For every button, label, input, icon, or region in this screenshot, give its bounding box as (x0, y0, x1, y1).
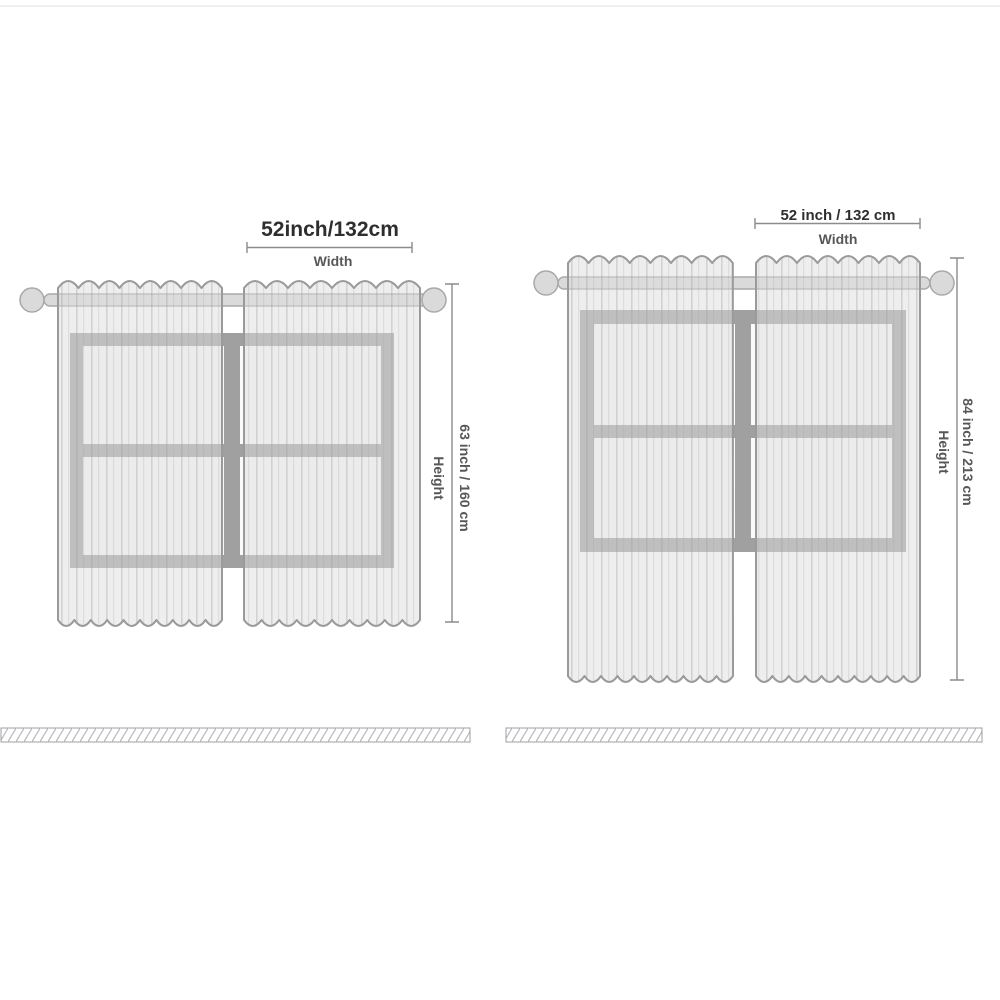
height-label: Height (936, 430, 952, 474)
height-dimension-line (445, 284, 459, 622)
width-dimension-line (247, 242, 412, 253)
height-value: 63 inch / 160 cm (457, 424, 473, 531)
diagram-84-inch: 52 inch / 132 cm Width 84 inch / 213 cm … (534, 207, 976, 682)
floor-hatch-left (1, 728, 470, 742)
width-value: 52inch/132cm (261, 218, 399, 241)
height-label: Height (431, 456, 447, 500)
rod-finial-left (20, 288, 44, 312)
width-value: 52 inch / 132 cm (780, 207, 895, 224)
curtain-size-diagram: 52inch/132cm Width 63 inch / 160 cm Heig… (0, 0, 1000, 1000)
curtain-panel-right (756, 256, 920, 682)
curtain-panel-left (568, 256, 733, 682)
width-label: Width (314, 253, 353, 269)
floor-hatch-right (506, 728, 982, 742)
curtain-size-diagram-page: 52inch/132cm Width 63 inch / 160 cm Heig… (0, 0, 1000, 1000)
diagram-63-inch: 52inch/132cm Width 63 inch / 160 cm Heig… (20, 218, 473, 626)
rod-finial-left (534, 271, 558, 295)
rod-finial-right (930, 271, 954, 295)
width-label: Width (819, 231, 858, 247)
rod-finial-right (422, 288, 446, 312)
curtain-panel-right (244, 281, 420, 626)
curtain-panel-left (58, 281, 222, 626)
height-value: 84 inch / 213 cm (960, 398, 976, 505)
